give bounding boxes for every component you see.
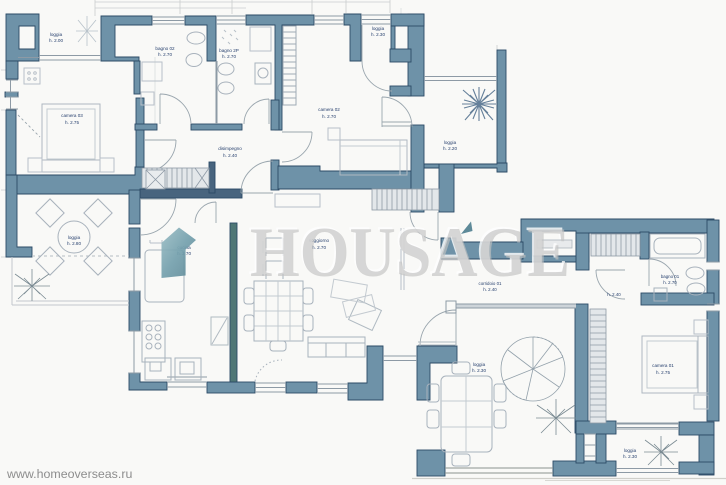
svg-text:h. 2.75: h. 2.75	[65, 120, 79, 125]
svg-text:h. 2.70: h. 2.70	[158, 52, 172, 57]
svg-text:bagno 02: bagno 02	[155, 46, 175, 51]
svg-text:h. 2.00: h. 2.00	[49, 38, 63, 43]
svg-text:bagno 01: bagno 01	[661, 274, 680, 279]
svg-text:h. 2.70: h. 2.70	[322, 114, 336, 119]
svg-text:loggia: loggia	[624, 448, 637, 453]
svg-text:h. 2.30: h. 2.30	[371, 32, 385, 37]
svg-text:loggia: loggia	[68, 235, 81, 240]
svg-text:loggia: loggia	[444, 140, 457, 145]
svg-text:h. 2.70: h. 2.70	[663, 280, 677, 285]
svg-text:h. 2.75: h. 2.75	[656, 370, 670, 375]
svg-text:bagno 2P: bagno 2P	[219, 48, 239, 53]
svg-text:h. 2.40: h. 2.40	[223, 153, 237, 158]
svg-text:loggia: loggia	[473, 362, 486, 367]
svg-text:HOUSAGE: HOUSAGE	[250, 214, 570, 292]
svg-text:h. 2.40: h. 2.40	[607, 292, 621, 297]
svg-text:disimpegno: disimpegno	[218, 146, 242, 151]
svg-text:loggia: loggia	[50, 32, 63, 37]
svg-text:camera 01: camera 01	[652, 363, 674, 368]
svg-text:h. 2.80: h. 2.80	[67, 241, 81, 246]
svg-text:camera 02: camera 02	[318, 107, 340, 112]
svg-text:loggia: loggia	[372, 26, 385, 31]
svg-text:h. 2.30: h. 2.30	[623, 454, 637, 459]
svg-text:www.homeoverseas.ru: www.homeoverseas.ru	[6, 467, 132, 481]
svg-text:h. 2.20: h. 2.20	[443, 146, 457, 151]
svg-text:camera 03: camera 03	[61, 113, 83, 118]
svg-text:h. 2.30: h. 2.30	[472, 368, 486, 373]
svg-text:h. 2.70: h. 2.70	[222, 54, 236, 59]
